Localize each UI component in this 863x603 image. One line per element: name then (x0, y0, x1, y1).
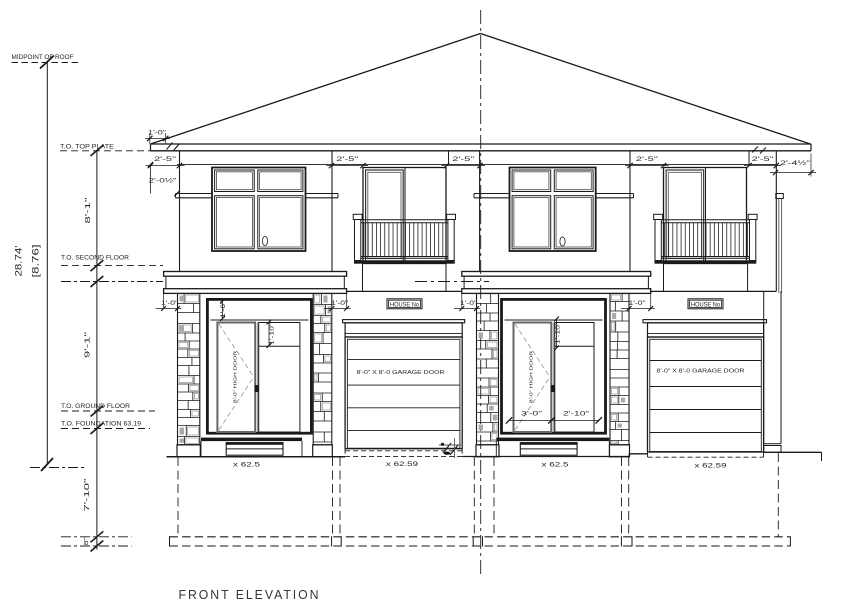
svg-text:9'-1": 9'-1" (83, 331, 92, 358)
svg-text:8'-0" HIGH DOOR: 8'-0" HIGH DOOR (529, 350, 535, 403)
svg-text:HOUSE No: HOUSE No (691, 303, 721, 309)
svg-text:T.O. TOP PLATE: T.O. TOP PLATE (60, 143, 115, 150)
svg-text:7'-10": 7'-10" (82, 478, 91, 512)
svg-text:1'-0": 1'-0" (148, 130, 166, 137)
svg-text:1'-0": 1'-0" (629, 301, 646, 307)
svg-text:3'-0": 3'-0" (521, 411, 542, 418)
svg-text:2'-5": 2'-5" (336, 156, 358, 163)
svg-text:x 62.5: x 62.5 (542, 462, 570, 469)
svg-text:2'-0½": 2'-0½" (149, 178, 177, 185)
svg-text:2'-5": 2'-5" (154, 156, 176, 163)
svg-text:8'-0" X 8'-0 GARAGE DOOR: 8'-0" X 8'-0 GARAGE DOOR (357, 370, 445, 376)
svg-text:1'-6": 1'-6" (221, 301, 227, 318)
svg-text:T.O. GROUND FLOOR: T.O. GROUND FLOOR (61, 403, 130, 410)
svg-text:FRONT ELEVATION: FRONT ELEVATION (179, 588, 321, 602)
svg-text:2'-5": 2'-5" (452, 156, 474, 163)
svg-text:1'-0": 1'-0" (331, 301, 348, 307)
svg-text:8'-0" X 8'-0 GARAGE DOOR: 8'-0" X 8'-0 GARAGE DOOR (657, 369, 745, 375)
svg-text:1'-10": 1'-10" (556, 322, 562, 344)
svg-text:HOUSE No: HOUSE No (390, 303, 420, 309)
svg-text:2'-4½": 2'-4½" (780, 160, 810, 167)
svg-text:2'-5": 2'-5" (752, 156, 774, 163)
svg-text:T.O. FOUNDATION 63.19: T.O. FOUNDATION 63.19 (61, 420, 141, 427)
svg-text:T.O. SECOND FLOOR: T.O. SECOND FLOOR (61, 255, 129, 262)
svg-text:1'-0": 1'-0" (161, 301, 178, 307)
svg-text:28.74': 28.74' (14, 245, 25, 276)
svg-text:8'-0" HIGH DOOR: 8'-0" HIGH DOOR (232, 350, 238, 403)
svg-text:x 62.5: x 62.5 (233, 462, 261, 469)
svg-text:2'-5": 2'-5" (636, 156, 658, 163)
svg-text:1'-10": 1'-10" (270, 323, 276, 345)
svg-text:x 62.59: x 62.59 (695, 463, 728, 470)
svg-text:8": 8" (84, 537, 90, 545)
svg-text:8'-1": 8'-1" (83, 197, 92, 224)
svg-text:MIDPOINT OF ROOF: MIDPOINT OF ROOF (12, 54, 74, 61)
svg-text:2'-10": 2'-10" (563, 411, 589, 418)
svg-text:x 62.59: x 62.59 (386, 461, 419, 468)
svg-text:[8.76]: [8.76] (31, 245, 42, 278)
svg-text:1'-0": 1'-0" (460, 301, 477, 307)
